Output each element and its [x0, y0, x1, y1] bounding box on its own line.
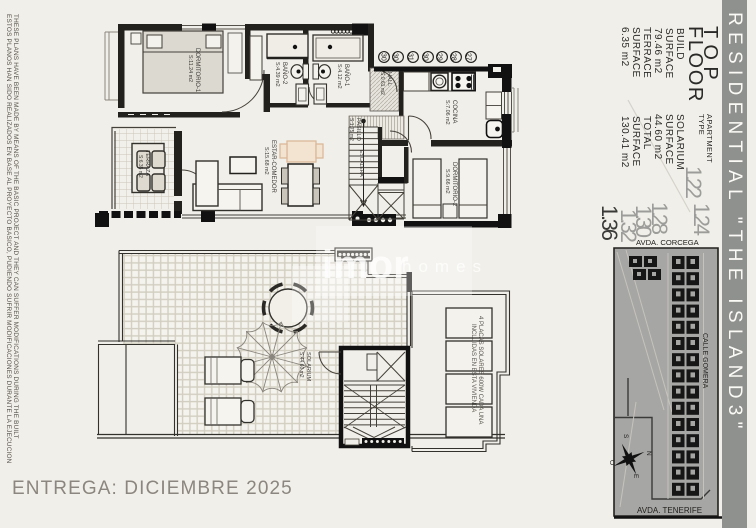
svg-text:TERRAZA: TERRAZA: [144, 150, 150, 176]
svg-text:S:6.35 m2: S:6.35 m2: [137, 155, 143, 178]
svg-text:30: 30: [380, 53, 387, 61]
svg-text:28: 28: [450, 53, 457, 61]
svg-text:ENTREGA: DICIEMBRE 2025: ENTREGA: DICIEMBRE 2025: [12, 478, 293, 499]
svg-text:AVDA. CORCEGA: AVDA. CORCEGA: [636, 238, 700, 247]
svg-text:SURFACE: SURFACE: [630, 27, 641, 78]
svg-text:S:4.39 m2: S:4.39 m2: [274, 62, 280, 87]
svg-text:79.46 m2: 79.46 m2: [652, 28, 663, 74]
svg-text:1.36: 1.36: [597, 205, 622, 241]
svg-text:imor: imor: [322, 243, 409, 287]
svg-text:S:44.60 m2: S:44.60 m2: [298, 352, 304, 378]
svg-text:1.22: 1.22: [681, 166, 706, 199]
svg-text:S:15.68 m2: S:15.68 m2: [263, 147, 269, 175]
svg-text:6.35 m2: 6.35 m2: [619, 27, 630, 67]
svg-text:SOLARIUM: SOLARIUM: [305, 352, 311, 382]
svg-text:130.41 m2: 130.41 m2: [619, 116, 630, 168]
svg-text:INCLUIDAS EN ESTA VIVIENDA: INCLUIDAS EN ESTA VIVIENDA: [470, 324, 476, 412]
svg-text:SURFACE: SURFACE: [663, 114, 674, 165]
svg-text:1.24: 1.24: [689, 203, 714, 236]
svg-text:E: E: [632, 474, 639, 479]
svg-text:ESTAR-COMEDOR: ESTAR-COMEDOR: [270, 140, 276, 194]
svg-text:S:4.12 m2: S:4.12 m2: [336, 64, 342, 89]
svg-text:29: 29: [436, 53, 443, 61]
svg-text:30: 30: [392, 53, 399, 61]
svg-text:SURFACE: SURFACE: [630, 116, 641, 167]
svg-text:N: N: [645, 451, 652, 456]
svg-text:27: 27: [465, 53, 472, 61]
svg-text:THESE PLANS HAVE BEEN MADE BY: THESE PLANS HAVE BEEN MADE BY MEANS OF T…: [12, 14, 19, 439]
svg-text:ESCALERA: ESCALERA: [358, 150, 364, 177]
svg-text:BUILD: BUILD: [674, 28, 685, 60]
svg-text:O: O: [608, 460, 615, 465]
svg-text:S:0.61 m2: S:0.61 m2: [379, 72, 385, 95]
svg-text:SOLARIUM: SOLARIUM: [674, 114, 685, 170]
svg-text:30: 30: [422, 53, 429, 61]
svg-text:S:1.75 m2: S:1.75 m2: [348, 118, 354, 141]
svg-text:44.60 m2: 44.60 m2: [652, 114, 663, 160]
svg-text:BAÑO-1: BAÑO-1: [343, 64, 350, 87]
svg-text:RESIDENTIAL "THE ISLAND3": RESIDENTIAL "THE ISLAND3": [724, 12, 745, 435]
svg-text:FLOOR: FLOOR: [684, 26, 706, 103]
svg-text:PASILLO: PASILLO: [355, 118, 361, 142]
svg-text:DORMITORIO-2: DORMITORIO-2: [451, 162, 457, 207]
svg-text:HALL: HALL: [386, 72, 392, 86]
svg-text:S:11.24 m2: S:11.24 m2: [187, 55, 193, 82]
svg-text:ESTOS PLANOS HAN SIDO REALIZAD: ESTOS PLANOS HAN SIDO REALIZADOS EN BASE…: [5, 14, 12, 464]
svg-text:TERRACE: TERRACE: [641, 27, 652, 78]
svg-text:S: S: [622, 434, 629, 439]
svg-text:DORMITORIO-1: DORMITORIO-1: [194, 48, 200, 93]
svg-text:S:9.66 m2: S:9.66 m2: [444, 169, 450, 194]
svg-text:homes: homes: [402, 257, 488, 276]
svg-text:4 PLACAS SOLARES 600W CADA UNA: 4 PLACAS SOLARES 600W CADA UNA: [477, 316, 483, 424]
svg-text:BAÑO-2: BAÑO-2: [281, 62, 288, 85]
svg-text:TOTAL: TOTAL: [641, 116, 652, 150]
svg-text:SURFACE: SURFACE: [663, 28, 674, 79]
svg-text:CALLE GOMERA: CALLE GOMERA: [701, 333, 708, 389]
svg-text:31: 31: [407, 53, 414, 61]
svg-text:AVDA. TENERIFE: AVDA. TENERIFE: [637, 506, 702, 515]
svg-text:COCINA: COCINA: [451, 100, 457, 123]
svg-text:TYPE: TYPE: [697, 114, 706, 135]
svg-text:S:7.06 m2: S:7.06 m2: [444, 100, 450, 125]
